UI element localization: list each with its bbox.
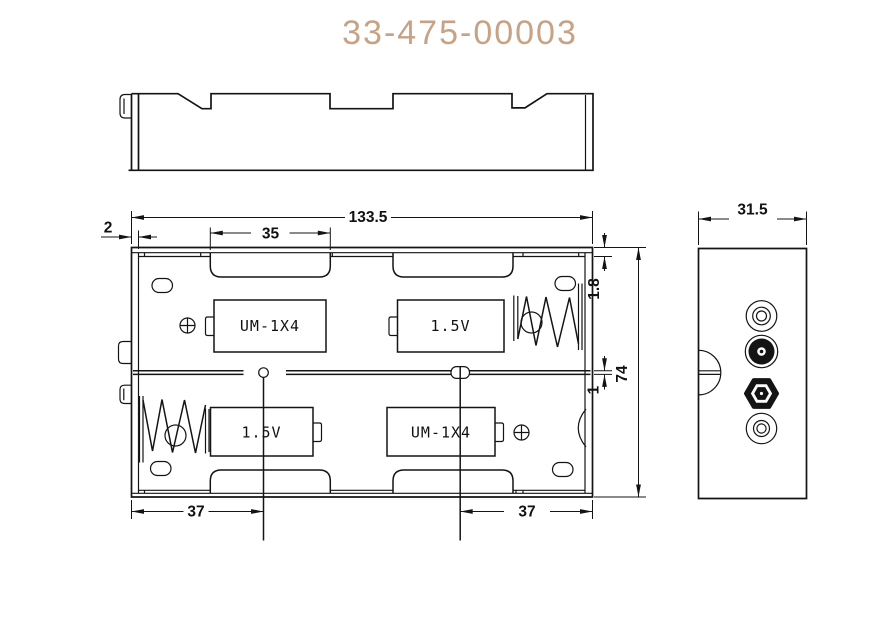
- cell-label-bottom-left: 1.5V: [241, 424, 281, 442]
- front-bottom-rim: [132, 490, 593, 493]
- svg-text:1: 1: [586, 385, 603, 394]
- technical-drawing: UM-1X4 1.5V 1.5V UM-1X4: [0, 0, 877, 644]
- top-profile-view: [120, 94, 593, 171]
- profile-side-clip: [120, 95, 132, 119]
- center-divider: [133, 371, 591, 375]
- side-view: [699, 249, 807, 499]
- terminal-leads: [264, 367, 461, 541]
- dim-slot-width: 35: [210, 226, 330, 251]
- svg-text:74: 74: [614, 365, 631, 383]
- svg-text:1.8: 1.8: [586, 278, 603, 300]
- spring-bottom-left: [140, 396, 210, 463]
- dim-divider-thickness: 1: [586, 356, 613, 394]
- front-side-walls-inner: [139, 253, 586, 494]
- side-outline: [699, 249, 807, 499]
- svg-text:37: 37: [518, 504, 535, 521]
- svg-text:31.5: 31.5: [737, 202, 768, 219]
- dim-pitch-left: 37: [132, 500, 264, 521]
- left-tab-upper: [119, 342, 132, 364]
- front-outline: [132, 248, 593, 498]
- cell-label-bottom-right: UM-1X4: [411, 424, 471, 442]
- dim-pitch-right: 37: [460, 500, 592, 521]
- profile-outline: [129, 94, 594, 171]
- profile-left-wall: [132, 94, 139, 171]
- side-left-bump: [699, 350, 721, 395]
- svg-text:2: 2: [104, 220, 113, 237]
- top-slot-right: [393, 253, 513, 277]
- side-rivet-bottom: [746, 413, 776, 443]
- oval-slot-bottom-left: [151, 462, 172, 476]
- left-tab-lower: [120, 385, 132, 403]
- top-slot-left: [210, 253, 330, 277]
- side-hex-nut: [746, 380, 777, 407]
- dim-rim-height: 1.8: [586, 233, 646, 300]
- front-top-rim: [132, 253, 593, 257]
- svg-text:35: 35: [262, 226, 280, 243]
- center-terminal-hole: [259, 368, 269, 378]
- oval-slot-top-left: [152, 279, 173, 293]
- dim-overall-width: 133.5: [132, 209, 593, 244]
- cell-label-top-left: UM-1X4: [240, 317, 300, 335]
- svg-text:37: 37: [187, 504, 204, 521]
- spring-top-right: [514, 284, 582, 351]
- side-contact-rivet: [745, 335, 777, 367]
- svg-text:133.5: 133.5: [349, 209, 388, 226]
- screw-symbol-left: [180, 318, 195, 333]
- dim-edge-offset: 2: [101, 220, 157, 250]
- bottom-slot-right: [393, 470, 513, 493]
- dim-side-width: 31.5: [699, 202, 807, 246]
- oval-slot-bottom-right: [553, 463, 574, 477]
- drawing-sheet: 33-475-00003: [0, 0, 877, 644]
- screw-symbol-right: [514, 425, 529, 440]
- bottom-slot-left: [210, 470, 330, 493]
- side-rivet-top: [746, 301, 777, 332]
- oval-slot-top-right: [555, 277, 576, 291]
- cell-label-top-right: 1.5V: [430, 317, 470, 335]
- front-view: UM-1X4 1.5V 1.5V UM-1X4: [119, 248, 593, 541]
